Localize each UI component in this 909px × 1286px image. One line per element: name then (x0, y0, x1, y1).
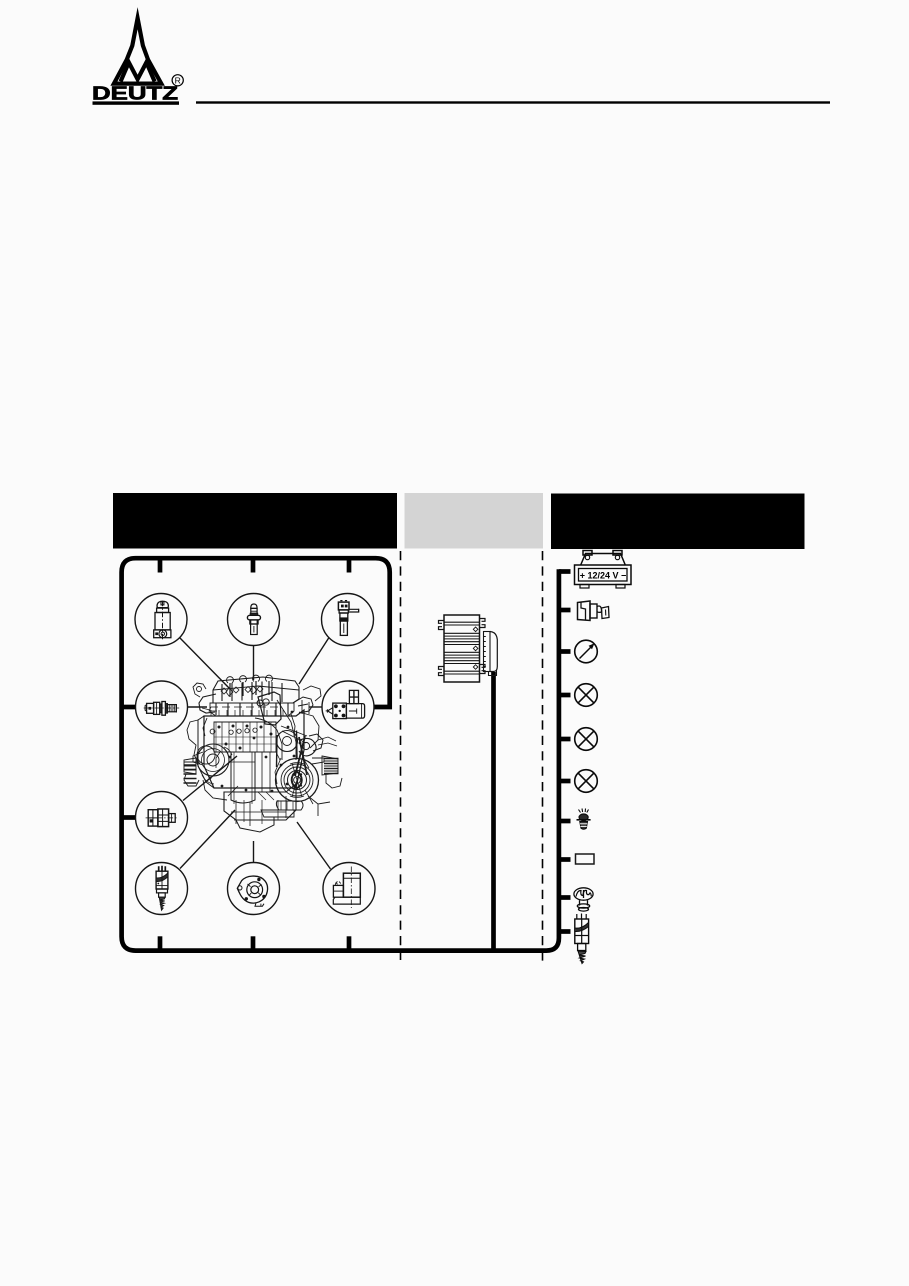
svg-text:+ 12/24 V −: + 12/24 V − (580, 571, 627, 581)
svg-text:DEUTZ: DEUTZ (92, 84, 178, 104)
svg-text:R: R (175, 76, 181, 86)
